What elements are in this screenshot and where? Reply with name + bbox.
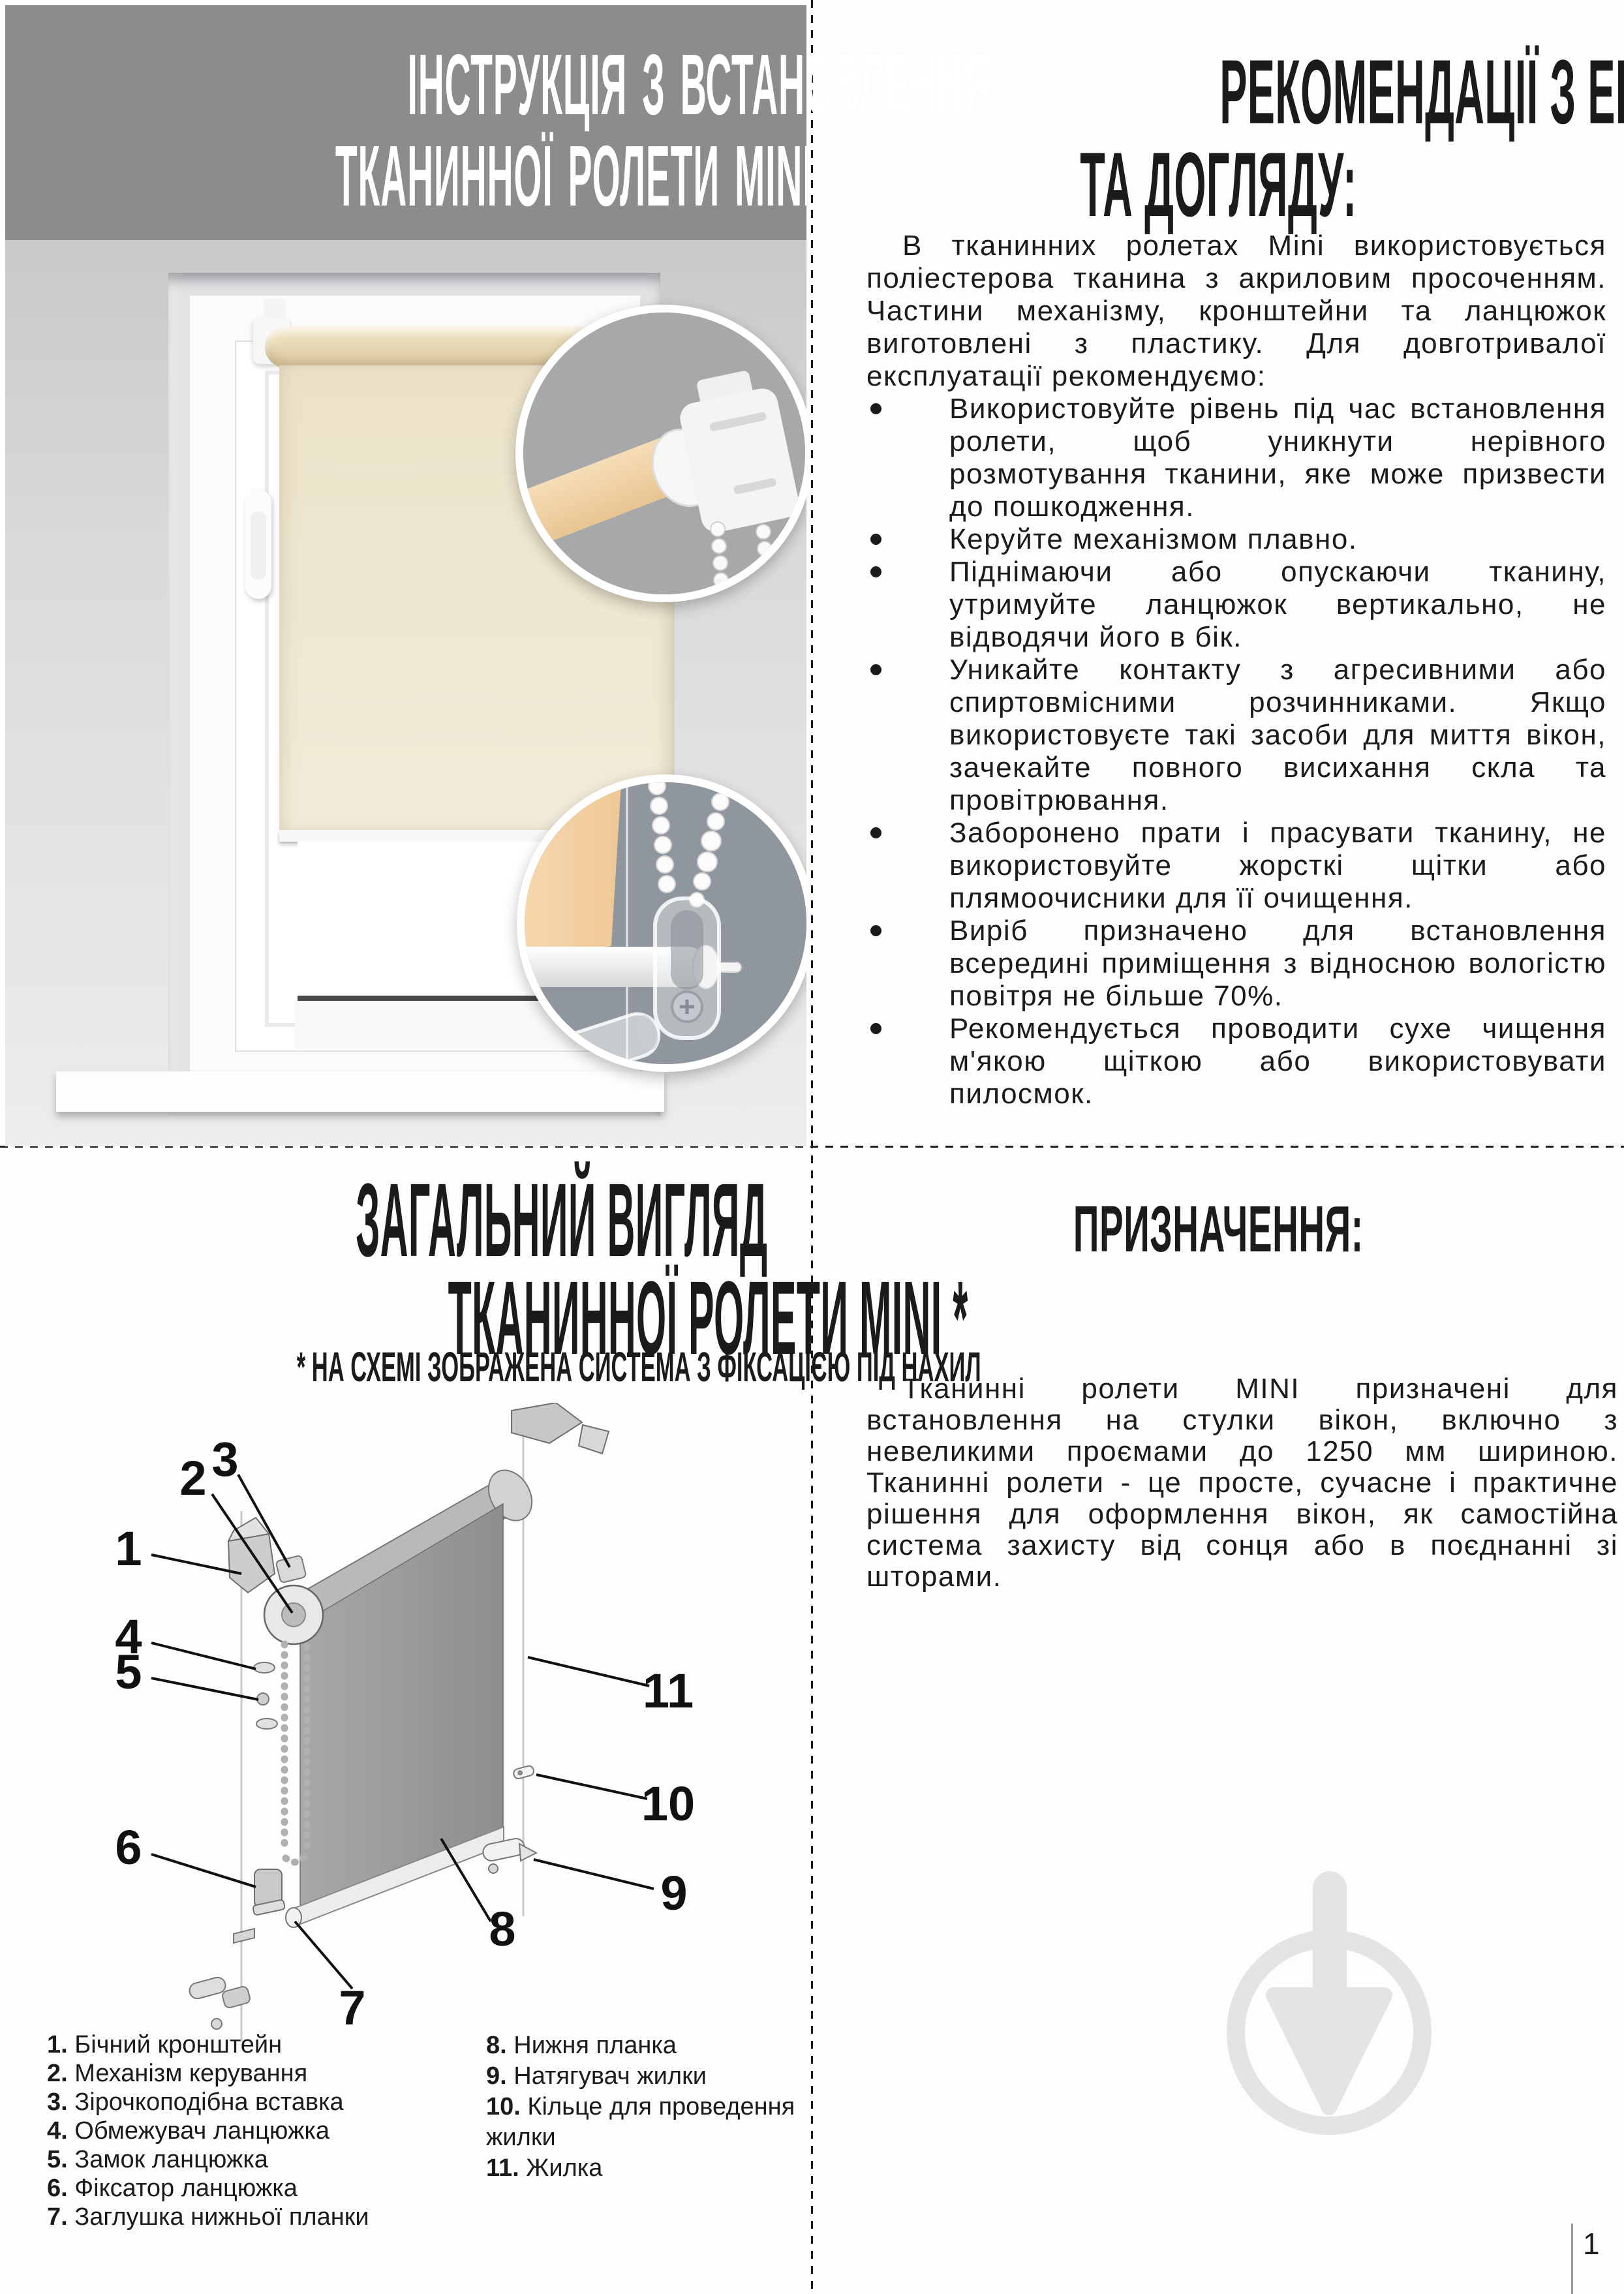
legend-item-1: 1. Бічний кронштейн xyxy=(47,2030,465,2059)
star-insert xyxy=(275,1555,306,1583)
bullet-dot-icon xyxy=(870,1023,881,1034)
legend-right-column: 8. Нижня планка 9. Натягувач жилки 10. К… xyxy=(486,2030,796,2184)
callout-1: 1 xyxy=(115,1522,142,1576)
care-bullet-6: Виріб призначено для встановлення всеред… xyxy=(866,915,1606,1013)
roller-bracket-tab xyxy=(264,299,286,318)
brand-watermark-icon xyxy=(1214,1866,1448,2140)
care-bullet-5: Заборонено прати і прасувати тканину, не… xyxy=(866,817,1606,915)
instruction-page: ІНСТРУКЦІЯ З ВСТАНОВЛЕННЯ ТКАНИННОЇ РОЛЕ… xyxy=(0,0,1624,2294)
care-bullet-2: Керуйте механізмом плавно. xyxy=(866,523,1606,556)
callout-8: 8 xyxy=(489,1902,515,1956)
callout-7: 7 xyxy=(339,1981,365,2035)
tensioner-bracket-icon xyxy=(655,898,719,1038)
overview-heading-line1: ЗАГАЛЬНИЙ ВИГЛЯД xyxy=(5,1171,806,1269)
legend-item-7: 7. Заглушка нижньої планки xyxy=(47,2203,465,2231)
legend-item-8: 8. Нижня планка xyxy=(486,2030,796,2061)
legend-item-2: 2. Механізм керування xyxy=(47,2059,465,2088)
window-photo xyxy=(5,240,806,1146)
overview-note: * НА СХЕМІ ЗОБРАЖЕНА СИСТЕМА З ФІКСАЦІЄЮ… xyxy=(5,1345,806,1388)
cord-clip xyxy=(234,1929,254,1943)
chain-lock xyxy=(257,1693,269,1705)
overview-section-heading: ЗАГАЛЬНИЙ ВИГЛЯД ТКАНИННОЇ РОЛЕТИ MINI * xyxy=(5,1171,806,1367)
blind-exploded-diagram: 1 2 3 4 5 6 7 8 9 10 11 xyxy=(26,1403,809,2042)
bullet-dot-icon xyxy=(870,403,881,414)
callout-11: 11 xyxy=(643,1664,694,1718)
bullet-dot-icon xyxy=(870,534,881,545)
legend-item-3: 3. Зірочкоподібна вставка xyxy=(47,2088,465,2117)
care-bullet-4: Уникайте контакту з агресивними або спир… xyxy=(866,654,1606,817)
legend-item-9: 9. Натягувач жилки xyxy=(486,2061,796,2092)
bullet-dot-icon xyxy=(870,566,881,577)
care-heading-line2: ТА ДОГЛЯДУ: xyxy=(812,138,1624,231)
care-bullet-3: Піднімаючи або опускаючи тканину, утриму… xyxy=(866,556,1606,654)
legend-item-11: 11. Жилка xyxy=(486,2153,796,2184)
cord-ring xyxy=(513,1765,535,1780)
page-number-rule xyxy=(1571,2224,1573,2294)
callout-9: 9 xyxy=(660,1866,687,1920)
bullet-dot-icon xyxy=(870,827,881,838)
inset-mechanism-circle xyxy=(515,305,806,602)
bullet-dot-icon xyxy=(870,925,881,936)
chain-fixator xyxy=(253,1869,285,1916)
care-intro-paragraph: В тканинних ролетах Mini використовуєтьс… xyxy=(866,230,1606,393)
inset-tensioner-circle xyxy=(517,774,806,1072)
inset-tensioner-drawing xyxy=(525,782,806,1064)
legend-item-5: 5. Замок ланцюжка xyxy=(47,2145,465,2174)
care-section-heading: РЕКОМЕНДАЦІЇ З ЕКСПЛУАТАЦІЇ ТА ДОГЛЯДУ: xyxy=(812,46,1624,231)
page-title-line2: ТКАНИННОЇ РОЛЕТИ MINI xyxy=(5,130,806,222)
care-bullet-list: Використовуйте рівень під час встановлен… xyxy=(866,393,1606,1110)
purpose-paragraph: Тканинні ролети MINI призначені для вста… xyxy=(866,1373,1618,1593)
header-banner: ІНСТРУКЦІЯ З ВСТАНОВЛЕННЯ ТКАНИННОЇ РОЛЕ… xyxy=(5,5,806,240)
callout-6: 6 xyxy=(115,1820,142,1874)
inset-mechanism-drawing xyxy=(523,313,805,594)
page-number: 1 xyxy=(1583,2226,1600,2261)
legend-left-column: 1. Бічний кронштейн 2. Механізм керуванн… xyxy=(47,2030,465,2231)
legend-item-10: 10. Кільце для проведення жилки xyxy=(486,2092,796,2153)
legend-item-6: 6. Фіксатор ланцюжка xyxy=(47,2174,465,2203)
chain-limiter xyxy=(254,1662,275,1673)
callout-2: 2 xyxy=(179,1451,206,1505)
callout-5: 5 xyxy=(115,1645,142,1699)
top-right-bracket xyxy=(512,1403,609,1454)
window-sill xyxy=(56,1071,664,1112)
window-handle-base xyxy=(251,512,266,579)
page-title-line1: ІНСТРУКЦІЯ З ВСТАНОВЛЕННЯ xyxy=(5,39,806,130)
purpose-section-heading: ПРИЗНАЧЕННЯ: xyxy=(812,1195,1624,1263)
care-bullet-7: Рекомендується проводити сухе чищення м'… xyxy=(866,1013,1606,1110)
legend-item-4: 4. Обмежувач ланцюжка xyxy=(47,2117,465,2145)
care-bullet-1: Використовуйте рівень під час встановлен… xyxy=(866,393,1606,523)
care-heading-line1: РЕКОМЕНДАЦІЇ З ЕКСПЛУАТАЦІЇ xyxy=(812,46,1624,138)
callout-10: 10 xyxy=(641,1777,695,1831)
bullet-dot-icon xyxy=(870,664,881,675)
callout-3: 3 xyxy=(211,1432,238,1486)
